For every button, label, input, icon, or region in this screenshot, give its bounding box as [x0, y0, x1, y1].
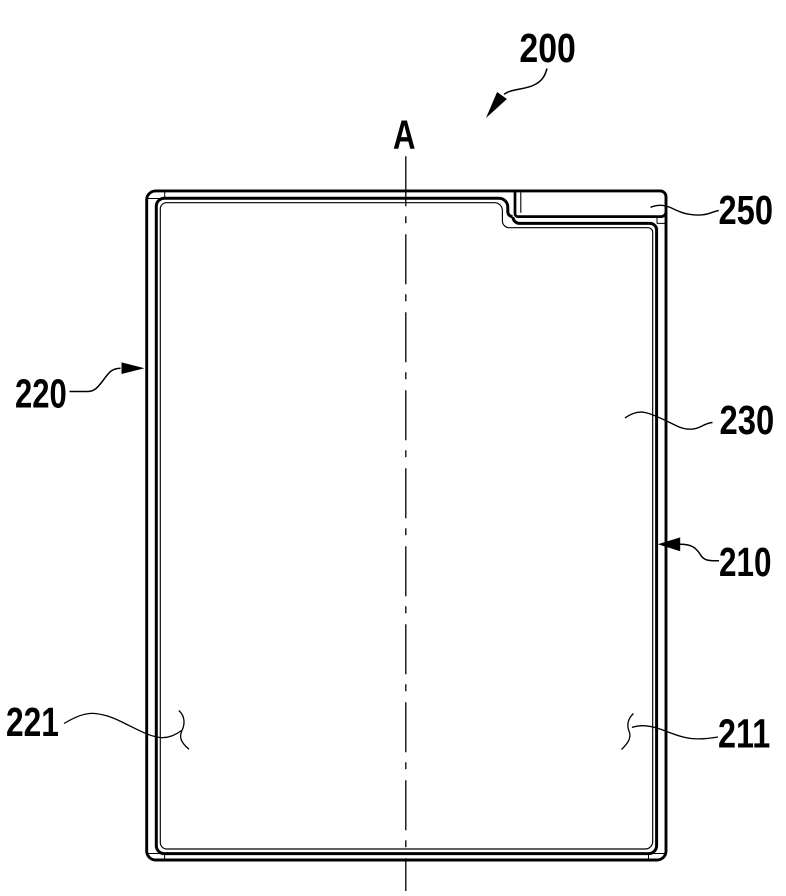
- svg-text:230: 230: [720, 397, 775, 443]
- svg-text:221: 221: [6, 699, 59, 745]
- svg-text:211: 211: [718, 711, 770, 757]
- svg-text:200: 200: [519, 25, 576, 71]
- svg-text:220: 220: [15, 371, 67, 417]
- svg-text:250: 250: [719, 187, 774, 233]
- svg-text:210: 210: [719, 539, 772, 585]
- svg-text:A: A: [393, 111, 416, 157]
